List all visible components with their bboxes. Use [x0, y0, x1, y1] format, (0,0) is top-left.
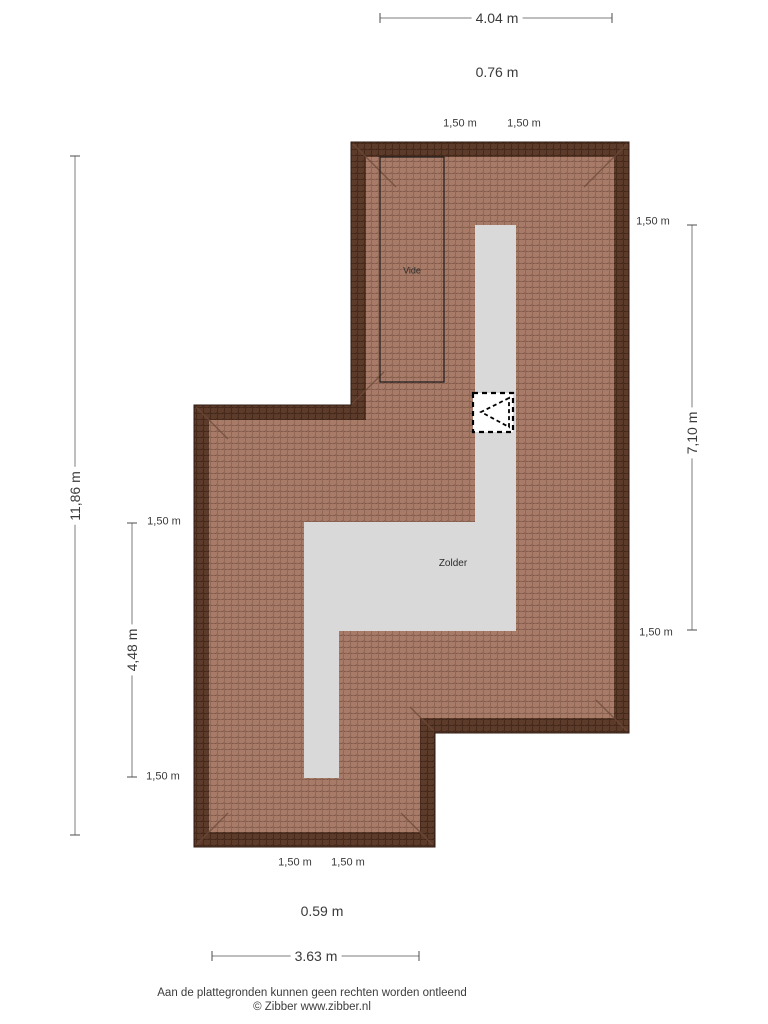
dim-seg-left-top: 1,50 m	[147, 517, 181, 528]
dim-seg-right-top: 1,50 m	[636, 217, 670, 228]
dim-seg-top-right: 1,50 m	[507, 119, 541, 130]
footer-disclaimer: Aan de plattegronden kunnen geen rechten…	[157, 987, 466, 999]
floorplan-drawing	[0, 0, 768, 1024]
dim-height-total: 11,86 m	[68, 467, 82, 525]
dim-width-bottom: 3.63 m	[291, 949, 342, 963]
dim-seg-left-bottom: 1,50 m	[146, 772, 180, 783]
room-label-zolder: Zolder	[439, 559, 467, 569]
dim-offset-top: 0.76 m	[476, 65, 519, 79]
room-label-vide: Vide	[403, 267, 421, 276]
roof-window-icon	[473, 393, 513, 432]
dim-height-left-inner: 4,48 m	[125, 625, 139, 676]
dim-seg-right-bottom: 1,50 m	[639, 628, 673, 639]
dim-width-top: 4.04 m	[472, 11, 523, 25]
dim-height-right: 7,10 m	[685, 408, 699, 459]
dim-offset-bottom: 0.59 m	[301, 904, 344, 918]
dim-seg-bottom-right: 1,50 m	[331, 858, 365, 869]
dim-seg-bottom-left: 1,50 m	[278, 858, 312, 869]
footer-credit: © Zibber www.zibber.nl	[253, 1001, 371, 1013]
floorplan-page: Vide Zolder 4.04 m 0.76 m 1,50 m 1,50 m …	[0, 0, 768, 1024]
dim-seg-top-left: 1,50 m	[443, 119, 477, 130]
